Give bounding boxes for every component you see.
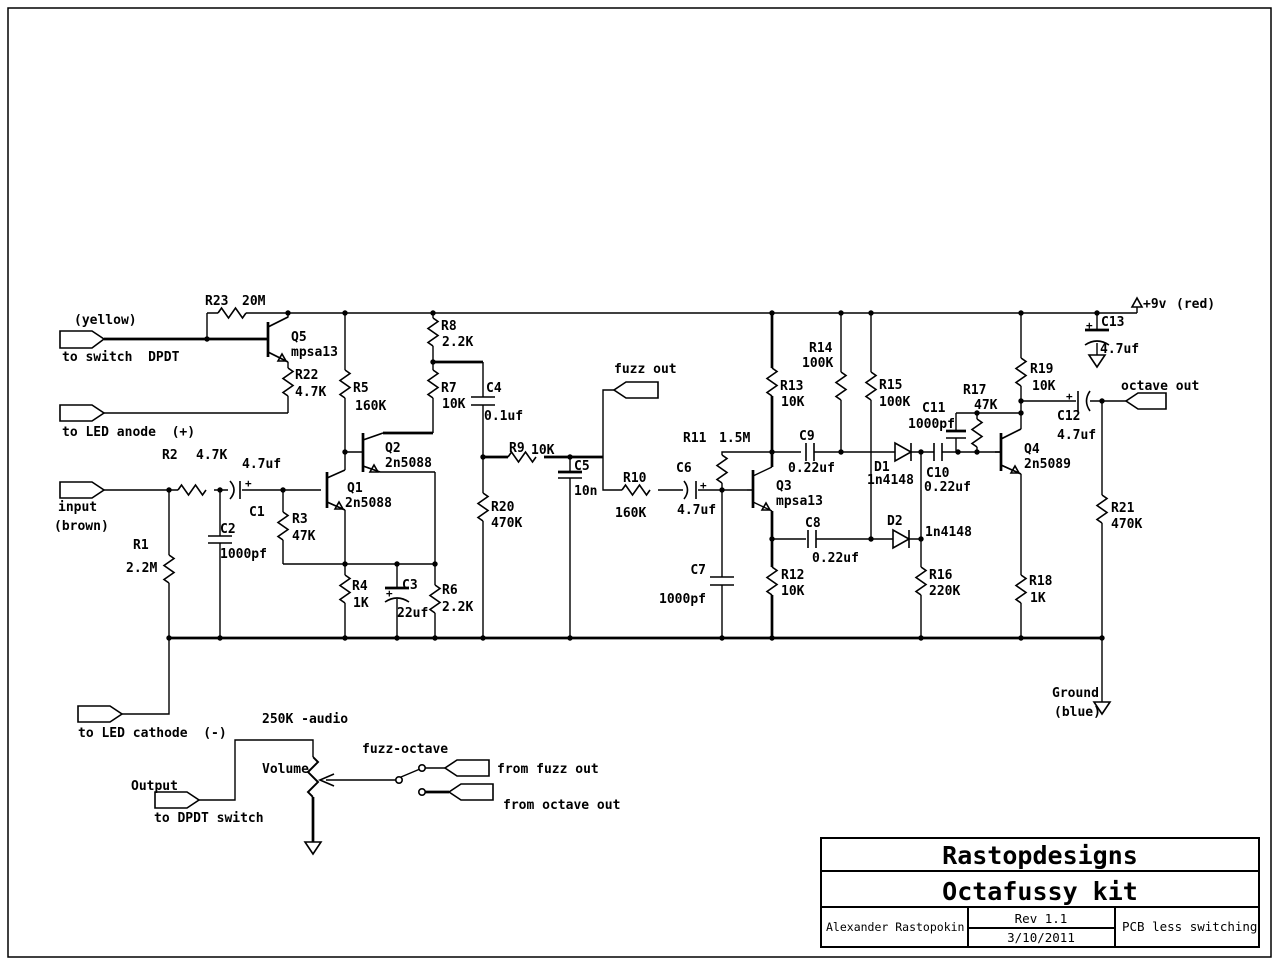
- title-rev: Rev 1.1: [1015, 911, 1068, 926]
- label-C10-val: 0.22uf: [924, 480, 971, 495]
- label-R8-val: 2.2K: [442, 335, 473, 350]
- tag-to-led-anode: [60, 405, 104, 421]
- label-to-dpdt: to DPDT switch: [154, 811, 264, 826]
- label-R14-val: 100K: [802, 356, 833, 371]
- label-Q1-ref: Q1: [347, 481, 363, 496]
- label-R23-val: 20M: [242, 294, 266, 309]
- label-C13-plus: +: [1086, 319, 1093, 332]
- resistor-R21-symbol: [1097, 495, 1107, 523]
- label-C3-plus: +: [386, 587, 393, 600]
- label-R22-val: 4.7K: [295, 385, 326, 400]
- label-D2-val: 1n4148: [925, 525, 972, 540]
- label-pot-name: Volume: [262, 762, 309, 777]
- tag-to-led-cathode: [78, 706, 122, 722]
- transistor-Q4-legs: [995, 429, 1021, 474]
- label-C1-val: 4.7uf: [242, 457, 281, 472]
- label-R6-ref: R6: [442, 583, 458, 598]
- resistor-R13-symbol: [767, 368, 777, 396]
- switch-throw-fuzz: [419, 765, 425, 771]
- label-R1-val: 2.2M: [126, 561, 157, 576]
- resistor-R7-symbol: [428, 370, 438, 398]
- label-C7-val: 1000pf: [659, 592, 706, 607]
- capacitor-C12-symbol: [1078, 391, 1090, 411]
- tag-from-octave-out: [449, 784, 493, 800]
- label-C2-ref: C2: [220, 522, 236, 537]
- resistor-R10-symbol: [622, 485, 650, 495]
- label-ground: Ground: [1052, 686, 1099, 701]
- label-Q5-val: mpsa13: [291, 345, 338, 360]
- tag-output: [155, 792, 199, 808]
- label-C6-ref: C6: [676, 461, 692, 476]
- label-Q4-ref: Q4: [1024, 442, 1040, 457]
- label-C13-val: 4.7uf: [1100, 342, 1139, 357]
- resistor-R22-symbol: [283, 368, 293, 396]
- resistor-R5-symbol: [340, 370, 350, 398]
- label-Q2-val: 2n5088: [385, 456, 432, 471]
- label-to-led-anode: to LED anode (+): [62, 425, 195, 440]
- transistor-Q3-arrow: [762, 503, 770, 510]
- resistor-R18-symbol: [1016, 575, 1026, 603]
- label-C3-val: 22uf: [397, 606, 428, 621]
- resistor-R20-symbol: [478, 493, 488, 521]
- label-R14-ref: R14: [809, 341, 833, 356]
- title-project: Octafussy kit: [942, 877, 1138, 906]
- label-R15-ref: R15: [879, 378, 902, 393]
- label-to-switch: to switch DPDT: [62, 350, 180, 365]
- label-R20-ref: R20: [491, 500, 515, 515]
- label-R16-ref: R16: [929, 568, 953, 583]
- label-R11-ref: R11: [683, 431, 707, 446]
- label-octave-out: octave out: [1121, 379, 1199, 394]
- label-R18-val: 1K: [1030, 591, 1046, 606]
- label-output: Output: [131, 779, 178, 794]
- transistor-Q2-legs: [357, 433, 383, 472]
- label-to-led-cathode: to LED cathode (-): [78, 726, 227, 741]
- resistor-R6-symbol: [430, 585, 440, 613]
- label-C4-val: 0.1uf: [484, 409, 523, 424]
- label-R7-val: 10K: [442, 397, 466, 412]
- label-C9-ref: C9: [799, 429, 815, 444]
- label-R2-ref: R2: [162, 448, 178, 463]
- label-R19-val: 10K: [1032, 379, 1056, 394]
- label-R4-val: 1K: [353, 596, 369, 611]
- label-C4-ref: C4: [486, 381, 502, 396]
- label-from-fuzz-out: from fuzz out: [497, 762, 599, 777]
- component-labels: R23 20M Q5 mpsa13 R22 4.7K R5 160K R8 2.…: [126, 294, 1142, 621]
- label-R10-val: 160K: [615, 506, 646, 521]
- resistor-R4-symbol: [340, 575, 350, 603]
- label-C11-ref: C11: [922, 401, 946, 416]
- label-R5-ref: R5: [353, 381, 369, 396]
- capacitor-C9-symbol: [806, 443, 814, 461]
- label-C12-plus: +: [1066, 390, 1073, 403]
- title-block: Rastopdesigns Octafussy kit Alexander Ra…: [821, 838, 1259, 947]
- label-R6-val: 2.2K: [442, 600, 473, 615]
- label-Q2-ref: Q2: [385, 441, 401, 456]
- label-C2-val: 1000pf: [220, 547, 267, 562]
- capacitor-C2-symbol: [208, 536, 232, 543]
- transistor-Q5-arrow: [278, 354, 286, 361]
- capacitor-C6-symbol: [684, 481, 696, 499]
- tag-fuzz-out: [614, 382, 658, 398]
- label-Q1-val: 2n5088: [345, 496, 392, 511]
- label-R20-val: 470K: [491, 516, 522, 531]
- diode-D1-symbol: [895, 443, 911, 461]
- resistor-R19-symbol: [1016, 358, 1026, 386]
- label-C12-val: 4.7uf: [1057, 428, 1096, 443]
- schematic-canvas: (yellow) to switch DPDT to LED anode (+)…: [0, 0, 1280, 966]
- label-R3-val: 47K: [292, 529, 316, 544]
- label-C1-plus: +: [245, 477, 252, 490]
- capacitor-C7-symbol: [710, 577, 734, 585]
- label-C1-ref: C1: [249, 505, 265, 520]
- label-R1-ref: R1: [133, 538, 149, 553]
- label-C5-ref: C5: [574, 459, 590, 474]
- label-C13-ref: C13: [1101, 315, 1124, 330]
- label-R17-ref: R17: [963, 383, 986, 398]
- label-R22-ref: R22: [295, 368, 318, 383]
- label-C10-ref: C10: [926, 466, 950, 481]
- label-fuzz-out: fuzz out: [614, 362, 677, 377]
- label-R10-ref: R10: [623, 471, 647, 486]
- label-C5-val: 10n: [574, 484, 597, 499]
- label-pot-value: 250K -audio: [262, 712, 348, 727]
- label-Q5-ref: Q5: [291, 330, 307, 345]
- label-C9-val: 0.22uf: [788, 461, 835, 476]
- capacitor-C8-symbol: [808, 530, 816, 548]
- capacitor-C1-symbol: [230, 481, 240, 499]
- label-plus9v: +9v: [1143, 297, 1167, 312]
- label-brown: (brown): [54, 519, 109, 534]
- label-R11-val: 1.5M: [719, 431, 750, 446]
- title-date: 3/10/2011: [1007, 930, 1075, 945]
- resistor-R15-symbol: [866, 372, 876, 400]
- label-C12-ref: C12: [1057, 409, 1080, 424]
- switch-throw-octave: [419, 789, 425, 795]
- label-switch-name: fuzz-octave: [362, 742, 448, 757]
- label-Q3-val: mpsa13: [776, 494, 823, 509]
- label-red: (red): [1176, 297, 1215, 312]
- label-R12-ref: R12: [781, 568, 804, 583]
- label-R23-ref: R23: [205, 294, 228, 309]
- label-R4-ref: R4: [352, 579, 368, 594]
- title-note: PCB less switching: [1122, 919, 1257, 934]
- label-C7-ref: C7: [690, 563, 706, 578]
- plus9v-arrow-icon: [1132, 298, 1142, 307]
- ground-icon-pot: [305, 842, 321, 854]
- diode-D2-symbol: [893, 530, 909, 548]
- label-D2-ref: D2: [887, 514, 903, 529]
- label-R5-val: 160K: [355, 399, 386, 414]
- label-input: input: [58, 500, 97, 515]
- label-R8-ref: R8: [441, 319, 457, 334]
- label-R13-val: 10K: [781, 395, 805, 410]
- diode-symbols: [893, 443, 911, 548]
- label-R2-val: 4.7K: [196, 448, 227, 463]
- label-C8-val: 0.22uf: [812, 551, 859, 566]
- potentiometer-symbol: [308, 757, 318, 797]
- label-R17-val: 47K: [974, 398, 998, 413]
- tag-octave-out: [1126, 393, 1166, 409]
- transistor-Q1-legs: [327, 470, 345, 510]
- transistor-Q2-arrow: [370, 465, 378, 472]
- resistor-R11-symbol: [717, 455, 727, 483]
- transistor-Q5-legs: [268, 317, 288, 362]
- capacitor-C4-symbol: [471, 397, 495, 405]
- fuzz-octave-switch: [396, 765, 425, 795]
- resistor-R14-symbol: [836, 372, 846, 400]
- label-R21-ref: R21: [1111, 501, 1135, 516]
- resistor-R23-symbol: [218, 308, 246, 318]
- resistor-R1-symbol: [164, 555, 174, 583]
- label-from-octave-out: from octave out: [503, 798, 620, 813]
- label-blue: (blue): [1054, 705, 1101, 720]
- label-D1-val: 1n4148: [867, 473, 914, 488]
- label-C3-ref: C3: [402, 578, 418, 593]
- label-R21-val: 470K: [1111, 517, 1142, 532]
- label-Q4-val: 2n5089: [1024, 457, 1071, 472]
- resistor-R17-symbol: [972, 419, 982, 447]
- resistor-R2-symbol: [178, 485, 206, 495]
- label-C8-ref: C8: [805, 516, 821, 531]
- label-R13-ref: R13: [780, 379, 803, 394]
- label-R3-ref: R3: [292, 512, 308, 527]
- label-R9-val: 10K: [531, 443, 555, 458]
- label-R18-ref: R18: [1029, 574, 1053, 589]
- resistor-R12-symbol: [767, 567, 777, 595]
- capacitor-C10-symbol: [934, 443, 942, 461]
- label-yellow: (yellow): [74, 313, 137, 328]
- resistor-R8-symbol: [428, 318, 438, 346]
- switch-pole: [396, 777, 402, 783]
- resistor-R16-symbol: [916, 567, 926, 595]
- label-R7-ref: R7: [441, 381, 457, 396]
- label-C11-val: 1000pf: [908, 417, 955, 432]
- label-R16-val: 220K: [929, 584, 960, 599]
- tag-from-fuzz-out: [445, 760, 489, 776]
- tag-input: [60, 482, 104, 498]
- resistor-R3-symbol: [278, 512, 288, 540]
- label-C6-val: 4.7uf: [677, 503, 716, 518]
- label-R19-ref: R19: [1030, 362, 1053, 377]
- label-R12-val: 10K: [781, 584, 805, 599]
- label-R15-val: 100K: [879, 395, 910, 410]
- label-Q3-ref: Q3: [776, 479, 792, 494]
- label-R9-ref: R9: [509, 441, 525, 456]
- tag-to-switch: [60, 331, 104, 348]
- label-C6-plus: +: [700, 479, 707, 492]
- title-author: Alexander Rastopokin: [826, 920, 964, 934]
- title-company: Rastopdesigns: [942, 841, 1138, 870]
